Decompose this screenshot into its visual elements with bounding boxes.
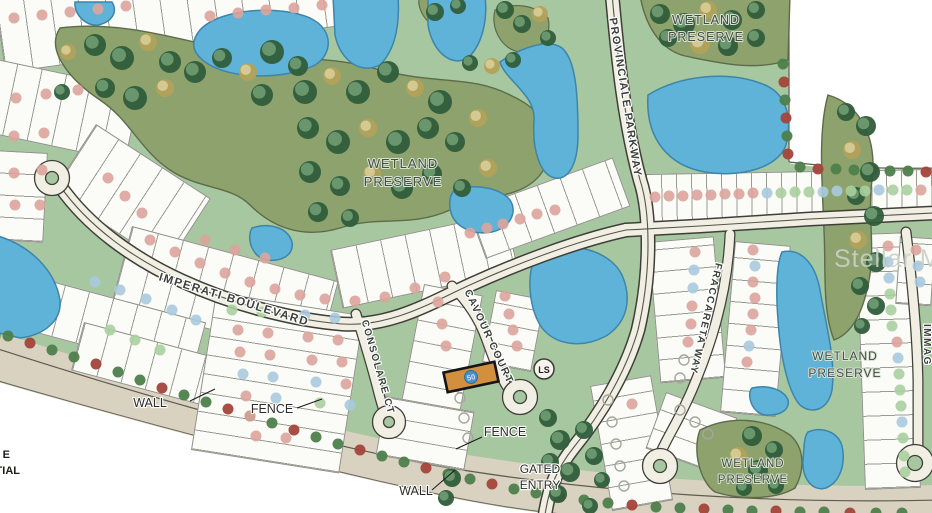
lot-dot xyxy=(441,341,452,352)
shrub xyxy=(91,359,102,370)
shrub xyxy=(135,375,146,386)
tree-highlight xyxy=(471,111,481,121)
shrub xyxy=(675,503,686,513)
lot-dot xyxy=(688,283,699,294)
lot-dot xyxy=(515,214,526,225)
wetland-line1: WETLAND xyxy=(368,156,439,171)
lot-dot-open xyxy=(607,417,617,427)
lot-dot xyxy=(130,335,141,346)
lot-dot xyxy=(260,253,271,264)
legend-fragment-1: E xyxy=(3,449,10,461)
tree-highlight xyxy=(541,31,550,40)
tree-highlight xyxy=(253,86,266,99)
tree-highlight xyxy=(161,53,174,66)
lot-dot xyxy=(90,277,101,288)
shrub xyxy=(487,479,498,490)
lot-dot xyxy=(498,219,509,230)
pond xyxy=(194,10,329,76)
lot-dot xyxy=(750,293,761,304)
tree-highlight xyxy=(125,88,139,102)
legend-fragment-2: TIAL xyxy=(0,465,20,477)
lift-station-label: LS xyxy=(538,365,550,375)
tree-highlight xyxy=(652,6,664,18)
tree-highlight xyxy=(262,42,276,56)
lift-station: LS xyxy=(534,359,554,379)
lot-dot xyxy=(295,290,306,301)
lot-dot xyxy=(115,285,126,296)
lot-dot xyxy=(233,8,244,19)
gated-entry-line2: ENTRY xyxy=(520,478,560,492)
street-label-imperati: IMPERATI BOULEVARD xyxy=(157,272,310,329)
tree-highlight xyxy=(290,58,302,70)
culdesac-island xyxy=(384,417,395,428)
shrub xyxy=(781,113,792,124)
tree-highlight xyxy=(533,7,542,16)
tree-highlight xyxy=(445,471,455,481)
lot-dot xyxy=(750,261,761,272)
shrub xyxy=(779,77,790,88)
street-label-provinciale: PROVINCIALE PARKWAY xyxy=(606,17,643,178)
tree-highlight xyxy=(515,17,525,27)
lot-dot xyxy=(39,128,50,139)
lot-dot xyxy=(350,296,361,307)
tree-highlight xyxy=(595,473,604,482)
shrub xyxy=(399,457,410,468)
tree-highlight xyxy=(55,85,64,94)
lot-dot xyxy=(746,325,757,336)
lot-dot xyxy=(141,294,152,305)
shrub xyxy=(421,463,432,474)
lot-dot xyxy=(437,319,448,330)
culdesac-island xyxy=(654,460,667,473)
pond xyxy=(333,0,398,68)
shrub xyxy=(771,506,782,513)
lot-dot xyxy=(410,283,421,294)
tree-highlight xyxy=(498,3,508,13)
shrub xyxy=(778,59,789,70)
culdesac-island xyxy=(46,172,59,185)
shrub xyxy=(3,331,14,342)
lot-dot xyxy=(263,328,274,339)
shrub xyxy=(355,445,366,456)
lot-dot-open xyxy=(615,461,625,471)
lot-dot xyxy=(500,291,511,302)
wetland-line1: WETLAND xyxy=(672,13,740,27)
lot-dot xyxy=(230,245,241,256)
shrub xyxy=(377,451,388,462)
wall-label-1: WALL xyxy=(133,396,167,410)
lot-dot xyxy=(320,294,331,305)
shrub xyxy=(813,164,824,175)
tree-highlight xyxy=(241,65,251,75)
fence-label-2: FENCE xyxy=(484,425,526,439)
lot-dot xyxy=(11,93,22,104)
lot-dot xyxy=(311,377,322,388)
lot-dot xyxy=(683,337,694,348)
lot-dot xyxy=(899,451,910,462)
shrub xyxy=(157,383,168,394)
shrub xyxy=(845,508,856,513)
tree-highlight xyxy=(749,31,759,41)
tree-highlight xyxy=(455,181,465,191)
lot-dot xyxy=(692,190,703,201)
lot-dot xyxy=(220,268,231,279)
lot-dot-open xyxy=(690,417,700,427)
lot-dot xyxy=(137,208,148,219)
lot-dot xyxy=(832,186,843,197)
fence-label-1: FENCE xyxy=(251,402,293,416)
lot-dot xyxy=(93,4,104,15)
lot-dot xyxy=(886,305,897,316)
tree-highlight xyxy=(310,204,322,216)
lot-dot xyxy=(689,265,700,276)
lot-dot xyxy=(245,277,256,288)
lot-dot xyxy=(892,337,903,348)
pond xyxy=(648,76,789,173)
lot-dot xyxy=(804,187,815,198)
lot-dot xyxy=(303,332,314,343)
shrub xyxy=(465,474,476,485)
tree-highlight xyxy=(428,5,438,15)
lot-dot-open xyxy=(619,481,629,491)
pond xyxy=(0,235,60,338)
lot-dot xyxy=(508,325,519,336)
lot-dot xyxy=(894,369,905,380)
tree-highlight xyxy=(869,299,879,309)
tree-highlight xyxy=(749,3,759,13)
lot-dot xyxy=(512,341,523,352)
lot-dot xyxy=(337,357,348,368)
lot-dot xyxy=(330,313,341,324)
lot-dot xyxy=(748,245,759,256)
site-plan-map: 50 LS IMPERATI BOULEVARD PROVINCIALE PAR… xyxy=(0,0,932,513)
lot-dot xyxy=(627,399,638,410)
tree-highlight xyxy=(562,464,574,476)
lot-dot xyxy=(860,186,871,197)
tree-highlight xyxy=(325,69,335,79)
shrub xyxy=(795,162,806,173)
subject-lot-marker: 50 xyxy=(443,362,498,392)
lot-dot xyxy=(818,187,829,198)
lot-dot xyxy=(235,347,246,358)
lot-dot-open xyxy=(675,373,685,383)
lot-dot xyxy=(748,277,759,288)
tree-highlight xyxy=(701,3,711,13)
lot-dot xyxy=(261,5,272,16)
lot-dot xyxy=(687,301,698,312)
watermark: Stellar MLS xyxy=(834,245,932,273)
lot-dot xyxy=(900,467,911,478)
lot-dot xyxy=(902,185,913,196)
lot-dot xyxy=(9,131,20,142)
wetland-line1: WETLAND xyxy=(721,458,784,470)
tree-highlight xyxy=(379,63,392,76)
shrub xyxy=(903,166,914,177)
lot-dot xyxy=(482,223,493,234)
tree-highlight xyxy=(388,132,402,146)
tree-highlight xyxy=(447,134,459,146)
shrub xyxy=(267,418,278,429)
tree-highlight xyxy=(430,92,444,106)
lot-dot xyxy=(105,325,116,336)
tree-highlight xyxy=(506,53,515,62)
lot-dot-open xyxy=(455,393,465,403)
lot-dot xyxy=(664,191,675,202)
shrub xyxy=(849,165,860,176)
tree-highlight xyxy=(552,432,564,444)
lot-dot xyxy=(73,85,84,96)
lot-dot xyxy=(155,345,166,356)
lot-dot xyxy=(103,173,114,184)
tree-highlight xyxy=(855,319,864,328)
pond xyxy=(803,430,843,489)
tree-highlight xyxy=(328,132,342,146)
lot-dot xyxy=(200,235,211,246)
tree-highlight xyxy=(439,491,448,500)
tree-highlight xyxy=(541,411,551,421)
shrub xyxy=(921,167,932,178)
tree-highlight xyxy=(361,121,371,131)
tree-highlight xyxy=(97,80,109,92)
lot-dot xyxy=(465,228,476,239)
lot-dot xyxy=(9,13,20,24)
shrub xyxy=(289,425,300,436)
tree-highlight xyxy=(86,36,99,49)
lot-dot xyxy=(532,209,543,220)
shrub xyxy=(831,164,842,175)
lot-dot xyxy=(720,189,731,200)
tree-highlight xyxy=(853,279,863,289)
pond xyxy=(750,387,789,415)
lot-dot xyxy=(650,192,661,203)
tree-highlight xyxy=(408,81,418,91)
wetland-line2: PRESERVE xyxy=(808,366,881,380)
culdesac-island xyxy=(908,456,923,471)
tree-highlight xyxy=(419,119,432,132)
lot-dot xyxy=(37,10,48,21)
lot-dot xyxy=(895,385,906,396)
lot-dot xyxy=(120,191,131,202)
tree-highlight xyxy=(301,163,314,176)
tree-highlight xyxy=(485,59,494,68)
shrub xyxy=(723,505,734,513)
lot-dot xyxy=(888,185,899,196)
shrub xyxy=(69,352,80,363)
tree-highlight xyxy=(767,443,777,453)
pond xyxy=(250,226,293,261)
shrub xyxy=(782,131,793,142)
lot-dot xyxy=(195,258,206,269)
lot-dot xyxy=(281,433,292,444)
lot-dot xyxy=(748,309,759,320)
lot-dot xyxy=(241,391,252,402)
lot-dot xyxy=(846,186,857,197)
wetland-line2: PRESERVE xyxy=(364,174,443,189)
lot-dot xyxy=(268,372,279,383)
tree-highlight xyxy=(61,45,70,54)
lot-dot xyxy=(762,188,773,199)
lot-dot xyxy=(265,350,276,361)
lot-dot xyxy=(440,272,451,283)
tree-highlight xyxy=(851,233,861,243)
shrub xyxy=(311,432,322,443)
lot-dot xyxy=(744,341,755,352)
tree-highlight xyxy=(845,143,855,153)
lot-dot xyxy=(916,185,927,196)
tree-highlight xyxy=(839,105,849,115)
lot-dot xyxy=(9,168,20,179)
shrub xyxy=(179,390,190,401)
lot-dot xyxy=(885,289,896,300)
lot-dot xyxy=(897,417,908,428)
lot-dot xyxy=(35,200,46,211)
shrub xyxy=(603,498,614,509)
lot-dot xyxy=(504,309,515,320)
tree-highlight xyxy=(858,118,870,130)
lot-dot xyxy=(734,189,745,200)
street-label-immag: IMMAG xyxy=(921,324,932,366)
lot-dot xyxy=(380,292,391,303)
lot-dot xyxy=(706,190,717,201)
lot-dot xyxy=(776,188,787,199)
tree-highlight xyxy=(583,499,592,508)
gated-entry-line1: GATED xyxy=(520,462,561,476)
lot-dot xyxy=(433,297,444,308)
lot-dot xyxy=(893,353,904,364)
tree-highlight xyxy=(481,161,491,171)
lot-dot xyxy=(898,433,909,444)
lot-dot xyxy=(690,247,701,258)
shrub xyxy=(699,504,710,513)
shrub xyxy=(25,338,36,349)
lot-dot xyxy=(686,319,697,330)
wetland-line2: PRESERVE xyxy=(718,474,788,486)
lot-dot xyxy=(233,325,244,336)
shrub xyxy=(885,166,896,177)
tree-highlight xyxy=(158,81,168,91)
lot-dot-open xyxy=(459,413,469,423)
lot-dot xyxy=(790,187,801,198)
shrub xyxy=(201,397,212,408)
lot-dot xyxy=(251,431,262,442)
tree-highlight xyxy=(295,82,309,96)
lot-dot xyxy=(341,379,352,390)
culdesac-island xyxy=(514,391,527,404)
shrub xyxy=(780,95,791,106)
tree-highlight xyxy=(744,428,756,440)
lot-dot xyxy=(205,11,216,22)
lot-dot xyxy=(748,188,759,199)
lot-dot xyxy=(270,284,281,295)
lot-dot xyxy=(37,165,48,176)
shrub xyxy=(627,500,638,511)
tree-highlight xyxy=(214,50,226,62)
lot-dot xyxy=(307,355,318,366)
tree-highlight xyxy=(299,119,312,132)
lot-dot xyxy=(317,0,328,11)
lot-dot xyxy=(167,305,178,316)
shrub xyxy=(819,507,830,513)
tree-highlight xyxy=(866,208,878,220)
lot-dot xyxy=(315,398,326,409)
lot-dot xyxy=(170,247,181,258)
shrub xyxy=(871,508,882,513)
tree-highlight xyxy=(186,63,199,76)
lot-dot xyxy=(345,400,356,411)
lot-dot xyxy=(874,185,885,196)
lot-dot-open xyxy=(679,355,689,365)
lot-dot xyxy=(238,369,249,380)
lot-dot xyxy=(896,401,907,412)
shrub xyxy=(223,404,234,415)
tree-highlight xyxy=(332,178,344,190)
tree-highlight xyxy=(343,211,353,221)
tree-highlight xyxy=(587,449,597,459)
shrub xyxy=(897,508,908,513)
tree-highlight xyxy=(463,56,472,65)
wetland-line2: PRESERVE xyxy=(668,30,744,44)
lot-dot xyxy=(742,357,753,368)
shrub xyxy=(509,484,520,495)
lot-dot xyxy=(915,277,926,288)
lot-dot xyxy=(10,200,21,211)
lot-dot xyxy=(145,235,156,246)
lot-dot xyxy=(289,3,300,14)
shrub xyxy=(651,502,662,513)
lot-dot xyxy=(884,273,895,284)
lot-dot xyxy=(191,315,202,326)
lot-dot xyxy=(41,89,52,100)
lot-dot-open xyxy=(611,439,621,449)
wetland-line1: WETLAND xyxy=(812,349,878,363)
lot-dot xyxy=(65,7,76,18)
tree-highlight xyxy=(112,48,126,62)
shrub xyxy=(747,506,758,513)
tree-highlight xyxy=(141,35,151,45)
lot-dot xyxy=(550,205,561,216)
map-features-layer: 50 LS IMPERATI BOULEVARD PROVINCIALE PAR… xyxy=(0,0,932,513)
shrub xyxy=(795,507,806,513)
wall-label-2: WALL xyxy=(399,484,433,498)
leader-fence-2 xyxy=(456,437,482,449)
shrub xyxy=(333,439,344,450)
tree-highlight xyxy=(577,423,587,433)
lot-dot xyxy=(887,321,898,332)
tree-highlight xyxy=(348,82,362,96)
shrub xyxy=(47,345,58,356)
shrub xyxy=(113,367,124,378)
lot-dot xyxy=(121,1,132,12)
lot-dot xyxy=(333,335,344,346)
shrub xyxy=(783,149,794,160)
tree-highlight xyxy=(862,164,874,176)
lot-dot xyxy=(678,191,689,202)
